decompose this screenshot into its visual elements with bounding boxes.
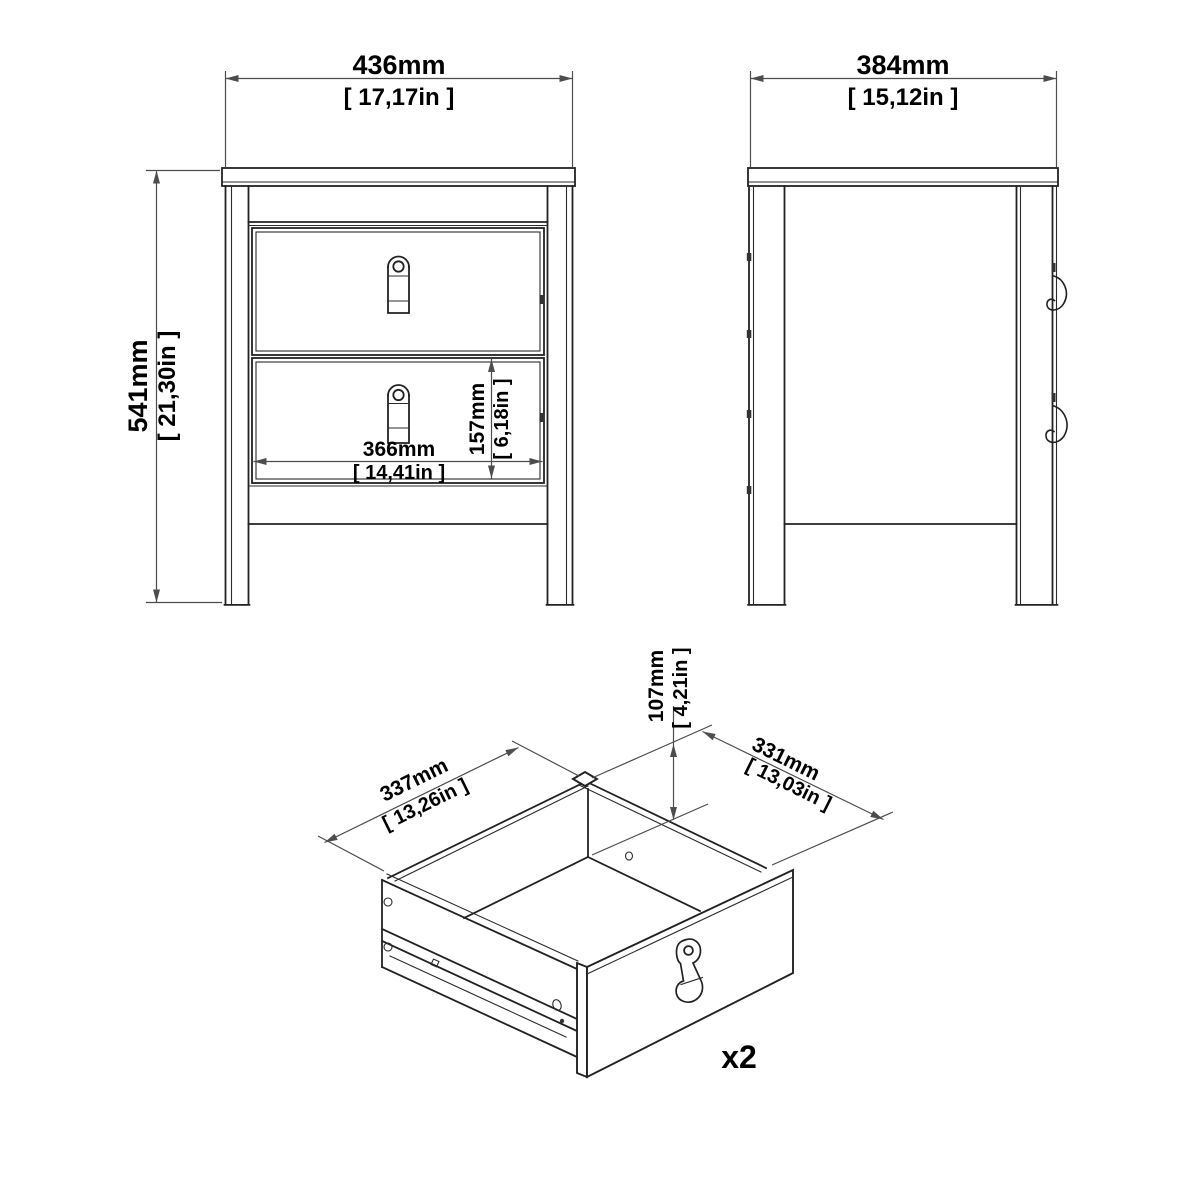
front-left-leg: [225, 186, 250, 605]
drawer-inner-height-in-label: [ 4,21in ]: [670, 647, 692, 728]
side-back-leg: [747, 186, 786, 605]
furniture-dimension-drawing: 436mm [ 17,17in ] 541mm [ 21,30in ] 366m…: [0, 0, 1200, 1200]
front-width-in-label: [ 17,17in ]: [344, 84, 455, 111]
side-tabletop: [748, 168, 1058, 186]
front-width-dimension: 436mm [ 17,17in ]: [226, 50, 573, 167]
front-height-dimension: 541mm [ 21,30in ]: [123, 171, 222, 603]
front-height-in-label: [ 21,30in ]: [154, 331, 181, 442]
front-drawer-top: [252, 228, 545, 355]
drawer-quantity-label: x2: [721, 1039, 757, 1075]
front-drawer-height-mm-label: 157mm: [466, 383, 489, 455]
front-width-mm-label: 436mm: [352, 50, 445, 80]
technical-drawing-page: 436mm [ 17,17in ] 541mm [ 21,30in ] 366m…: [0, 0, 1200, 1200]
front-height-mm-label: 541mm: [123, 339, 153, 432]
drawer-front-panel: [577, 870, 793, 1077]
front-drawer-height-in-label: [ 6,18in ]: [491, 378, 513, 459]
drawer-side-edge-dimension: 331mm [ 13,03in ]: [592, 725, 893, 865]
side-front-leg: [1016, 186, 1058, 605]
front-tabletop: [222, 168, 575, 186]
front-drawer-height-dimension: 157mm [ 6,18in ]: [466, 359, 513, 479]
drawer-left-side: [382, 880, 577, 1057]
drawer-side-screw-hole: [384, 898, 392, 906]
front-inner-width-in-label: [ 14,41in ]: [353, 462, 445, 484]
drawer-detail-view: 337mm [ 13,26in ] 331mm [ 13,03in ] 107m…: [318, 647, 893, 1077]
drawer-back-edge-dimension: 337mm [ 13,26in ]: [318, 741, 579, 871]
side-depth-in-label: [ 15,12in ]: [848, 84, 959, 111]
side-depth-dimension: 384mm [ 15,12in ]: [751, 50, 1057, 167]
front-right-leg: [547, 186, 574, 605]
drawer-top-handle: [388, 257, 409, 314]
front-view: 436mm [ 17,17in ] 541mm [ 21,30in ] 366m…: [123, 50, 575, 605]
side-view: 384mm [ 15,12in ]: [747, 50, 1067, 605]
drawer-inner-height-dimension: 107mm [ 4,21in ]: [645, 647, 692, 820]
drawer-inner-height-mm-label: 107mm: [645, 650, 668, 722]
side-depth-mm-label: 384mm: [856, 50, 949, 80]
drawer-bottom-handle: [388, 385, 409, 443]
front-inner-width-mm-label: 366mm: [363, 438, 435, 461]
drawer-bottom-hole: [626, 852, 633, 860]
